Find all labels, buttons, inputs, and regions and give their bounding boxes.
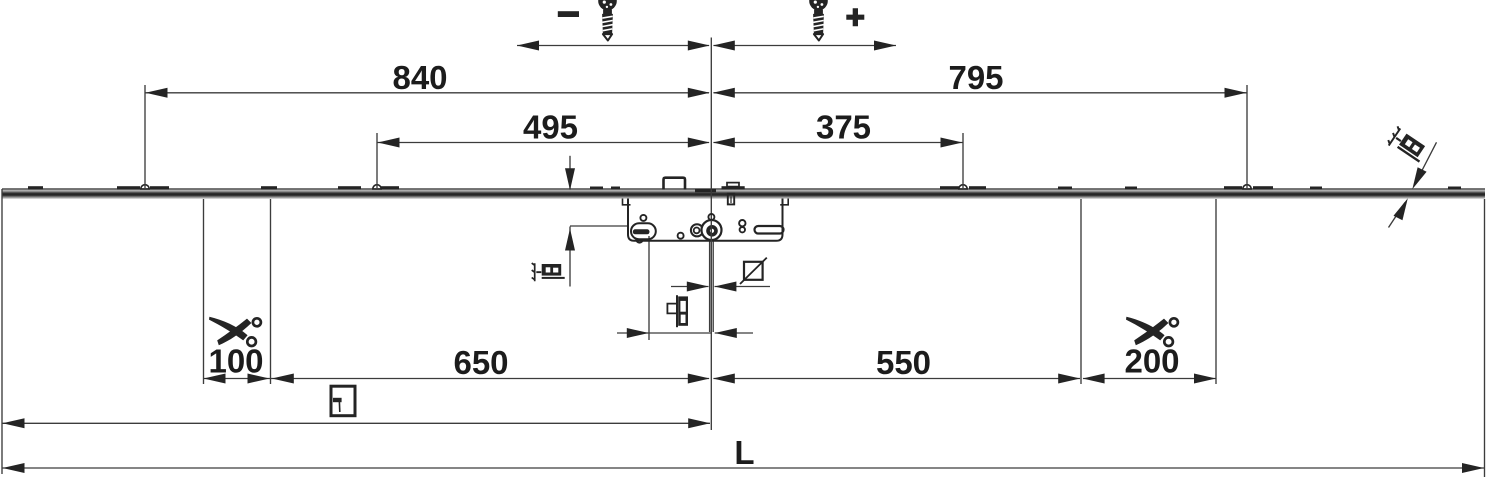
svg-text:495: 495 — [523, 109, 578, 146]
svg-text:L: L — [734, 434, 754, 471]
svg-text:100: 100 — [208, 343, 263, 380]
svg-text:375: 375 — [816, 109, 871, 146]
svg-text:840: 840 — [392, 59, 447, 96]
svg-text:200: 200 — [1124, 343, 1179, 380]
svg-text:795: 795 — [948, 59, 1003, 96]
svg-text:550: 550 — [876, 344, 931, 381]
svg-text:650: 650 — [453, 344, 508, 381]
